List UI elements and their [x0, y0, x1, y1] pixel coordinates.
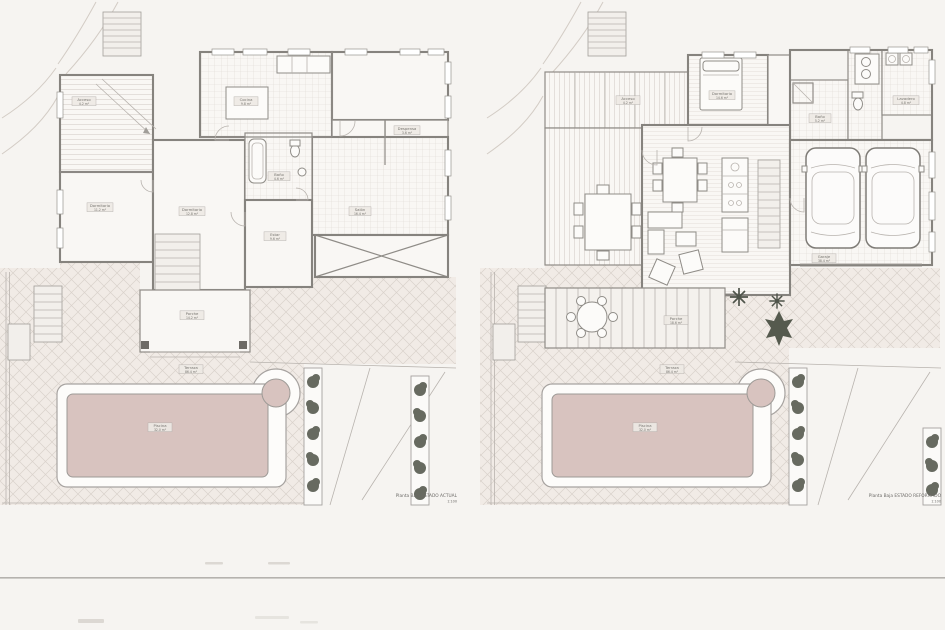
room-label-dormitorio1: Dormitorio 11.2 m² [87, 203, 113, 212]
round-table [577, 302, 607, 332]
sheet-footer [0, 562, 945, 624]
room-label-acceso: Acceso 4.2 m² [72, 97, 96, 106]
washer [886, 53, 898, 65]
room-label-porche: Porche 18.6 m² [664, 316, 688, 325]
outdoor-table [585, 194, 631, 250]
toilet [291, 145, 300, 157]
room-label-cocina: Cocina 9.8 m² [234, 97, 258, 106]
room-label-piscina: Piscina 32.0 m² [633, 423, 657, 432]
svg-text:1:100: 1:100 [931, 500, 941, 504]
porch-column [239, 341, 247, 349]
floor-plan-sheet: Acceso 4.2 m² Cocina 9.8 m² Despensa 3.6… [0, 0, 945, 630]
svg-text:18.6 m²: 18.6 m² [670, 321, 683, 325]
room-label-acceso: Acceso 4.2 m² [616, 96, 640, 105]
toilet [854, 98, 863, 110]
room-label-salon: Salón 16.4 m² [349, 207, 371, 216]
room-label-dormitorio2: Dormitorio 12.8 m² [179, 207, 205, 216]
internal-stair [758, 160, 780, 248]
sofa [648, 230, 664, 254]
svg-text:16.4 m²: 16.4 m² [354, 212, 367, 216]
svg-text:4.2 m²: 4.2 m² [623, 101, 634, 105]
room-label-estar: Estar 9.6 m² [264, 232, 286, 241]
porch [140, 290, 250, 357]
pool [542, 369, 785, 487]
room-label-piscina: Piscina 32.0 m² [148, 423, 172, 432]
pool [57, 369, 300, 487]
svg-text:9.6 m²: 9.6 m² [270, 237, 281, 241]
svg-text:86.4 m²: 86.4 m² [185, 370, 198, 374]
svg-text:9.8 m²: 9.8 m² [241, 102, 252, 106]
divider-line [0, 577, 945, 579]
svg-text:14.6 m²: 14.6 m² [716, 96, 729, 100]
coffee-table [676, 232, 696, 246]
car [802, 148, 864, 248]
bathtub [249, 139, 266, 183]
svg-text:4.2 m²: 4.2 m² [79, 102, 90, 106]
room-label-porche: Porche 14.2 m² [180, 311, 204, 320]
kitchen-island [722, 218, 748, 252]
entry-deck [60, 75, 156, 172]
room-label-terraza: Terraza 86.4 m² [179, 365, 203, 374]
room-label-bano: Baño 4.6 m² [268, 172, 290, 181]
room-label-despensa: Despensa 3.6 m² [394, 126, 420, 135]
spa-circle [747, 379, 775, 407]
svg-text:32.0 m²: 32.0 m² [639, 428, 652, 432]
svg-text:4.6 m²: 4.6 m² [274, 177, 285, 181]
sofa [648, 212, 682, 228]
kitchen-counter [277, 56, 330, 73]
room-label-terraza: Terraza 86.4 m² [660, 365, 684, 374]
sheet-svg: Acceso 4.2 m² Cocina 9.8 m² Despensa 3.6… [0, 0, 945, 630]
living-kitchen [642, 125, 790, 296]
svg-text:11.2 m²: 11.2 m² [94, 208, 107, 212]
sink [862, 58, 871, 67]
entry-staircase [103, 12, 141, 56]
porch-column [141, 341, 149, 349]
pergola-terrace [545, 288, 725, 348]
svg-text:3.6 m²: 3.6 m² [402, 131, 413, 135]
room-label-dormitorio: Dormitorio 14.6 m² [709, 91, 735, 100]
svg-text:5.2 m²: 5.2 m² [815, 119, 826, 123]
svg-text:14.2 m²: 14.2 m² [186, 316, 199, 320]
pillow [703, 61, 739, 71]
dryer [900, 53, 912, 65]
svg-text:32.0 m²: 32.0 m² [154, 428, 167, 432]
garage [790, 140, 932, 267]
caption-estado-reformado: Planta Baja ESTADO REFORMADO 1:100 [869, 493, 942, 504]
car [862, 148, 924, 248]
room-label-garaje: Garaje 38.4 m² [812, 254, 836, 263]
plan-estado-reformado: Acceso 4.2 m² Dormitorio 14.6 m² Baño 5.… [480, 2, 942, 505]
sink [862, 70, 871, 79]
room-label-bano: Baño 5.2 m² [809, 114, 831, 123]
svg-text:86.4 m²: 86.4 m² [666, 370, 679, 374]
svg-text:Planta Baja ESTADO ACTUAL: Planta Baja ESTADO ACTUAL [396, 493, 458, 499]
plan-estado-actual: Acceso 4.2 m² Cocina 9.8 m² Despensa 3.6… [0, 2, 458, 505]
planting-strips [789, 368, 941, 505]
svg-text:1:100: 1:100 [447, 500, 457, 504]
svg-text:38.4 m²: 38.4 m² [818, 259, 831, 263]
room-label-lavadero: Lavadero 4.8 m² [893, 96, 919, 105]
entry-staircase [588, 12, 626, 56]
dining-table [663, 158, 697, 202]
bath-utility-block [768, 50, 932, 140]
kitchen-counter [722, 158, 748, 212]
svg-text:4.8 m²: 4.8 m² [901, 101, 912, 105]
bedroom [688, 55, 768, 125]
spa-circle [262, 379, 290, 407]
sink [298, 168, 306, 176]
svg-text:12.8 m²: 12.8 m² [186, 212, 199, 216]
planting-strips [304, 368, 429, 505]
svg-text:Planta Baja ESTADO REFORMADO: Planta Baja ESTADO REFORMADO [869, 493, 942, 499]
lounge-chair [679, 250, 703, 274]
